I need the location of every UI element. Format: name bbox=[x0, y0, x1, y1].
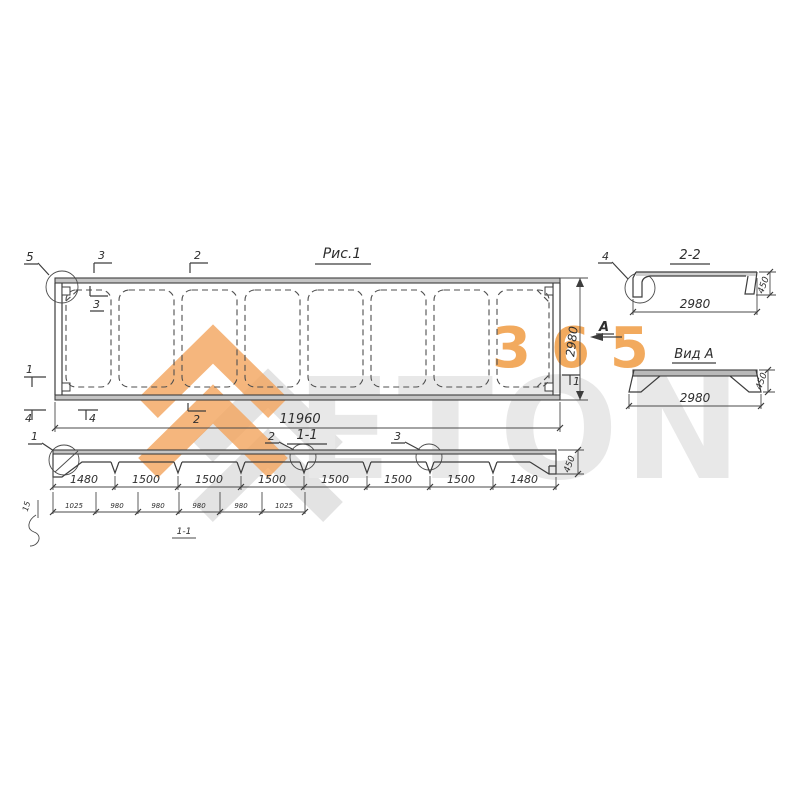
dim-1500-c: 1500 bbox=[258, 473, 286, 486]
dim-980-d: 980 bbox=[234, 502, 248, 510]
section-2-2: 2-2 4 2980 450 bbox=[598, 248, 776, 315]
section-2-2-height-dimension: 450 bbox=[756, 269, 776, 298]
callout-1-label: 1 bbox=[31, 430, 38, 443]
view-arrow-label: А bbox=[598, 320, 609, 335]
dim-1025-a: 1025 bbox=[65, 502, 83, 510]
cut-3-top-label: 3 bbox=[98, 249, 105, 262]
view-a-title: Вид А bbox=[674, 347, 713, 362]
dim-1480-b: 1480 bbox=[510, 473, 538, 486]
cut-1-left-label: 1 bbox=[26, 363, 33, 376]
cut-1-right-label: 1 bbox=[573, 375, 580, 388]
figure-title: Рис.1 bbox=[315, 246, 371, 264]
dim-1500-a: 1500 bbox=[132, 473, 160, 486]
section-2-2-width-label: 2980 bbox=[680, 297, 711, 311]
drawing-canvas: ETON 365 Рис.1 5 bbox=[0, 0, 800, 800]
section-2-2-height-label: 450 bbox=[756, 275, 771, 295]
dim-980-c: 980 bbox=[192, 502, 206, 510]
plan-bottom-edge bbox=[55, 395, 560, 400]
view-a-height-dimension: 450 bbox=[754, 367, 775, 395]
dim-1500-d: 1500 bbox=[321, 473, 349, 486]
dim-980-a: 980 bbox=[110, 502, 124, 510]
section-2-2-profile bbox=[633, 272, 757, 297]
callout-4-label: 4 bbox=[602, 250, 609, 263]
edge-offset: 15 bbox=[21, 500, 39, 546]
detail-5-label: 5 bbox=[26, 250, 34, 264]
section-1-1-title: 1-1 bbox=[296, 428, 317, 443]
cut-2-bottom-label: 2 bbox=[193, 413, 200, 426]
section-sub-title: 1-1 bbox=[177, 527, 192, 537]
cut-4b-label: 4 bbox=[89, 412, 96, 425]
dim-1500-b: 1500 bbox=[195, 473, 223, 486]
cut-3-inner-label: 3 bbox=[93, 298, 100, 311]
callout-3-label: 3 bbox=[394, 430, 401, 443]
offset-15-label: 15 bbox=[21, 500, 32, 512]
plan-length-label: 11960 bbox=[279, 412, 320, 427]
dim-1500-e: 1500 bbox=[384, 473, 412, 486]
cut-4a-label: 4 bbox=[25, 412, 32, 425]
section-2-2-width-dimension: 2980 bbox=[630, 278, 760, 315]
dim-980-b: 980 bbox=[151, 502, 165, 510]
blueprint-page: ETON 365 Рис.1 5 bbox=[0, 0, 800, 800]
figure-title-text: Рис.1 bbox=[323, 246, 362, 262]
view-a-width-label: 2980 bbox=[680, 391, 711, 405]
dim-1025-b: 1025 bbox=[275, 502, 293, 510]
dim-1500-f: 1500 bbox=[447, 473, 475, 486]
dimension-chain-bottom: 1025 980 980 980 980 1025 bbox=[50, 492, 308, 515]
cut-2-top-label: 2 bbox=[194, 249, 201, 262]
callout-2-label: 2 bbox=[268, 430, 275, 443]
section-2-2-title: 2-2 bbox=[679, 248, 700, 263]
plan-top-edge bbox=[55, 278, 560, 283]
dim-1480-a: 1480 bbox=[70, 473, 98, 486]
